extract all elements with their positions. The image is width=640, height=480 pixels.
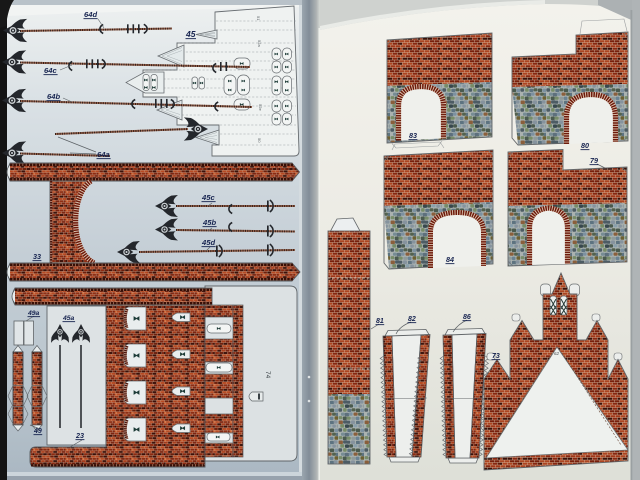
svg-text:23: 23 <box>75 431 84 440</box>
svg-text:84: 84 <box>446 255 454 264</box>
svg-text:62: 62 <box>554 351 560 356</box>
svg-text:51: 51 <box>256 16 261 21</box>
svg-text:45d: 45d <box>201 238 215 247</box>
svg-text:86: 86 <box>463 314 471 321</box>
svg-text:52e: 52e <box>258 104 263 111</box>
svg-text:74: 74 <box>264 371 271 379</box>
svg-text:33: 33 <box>33 252 41 261</box>
svg-text:73: 73 <box>492 353 500 360</box>
svg-text:81: 81 <box>376 318 384 325</box>
svg-text:50: 50 <box>257 138 262 143</box>
svg-text:83: 83 <box>409 131 417 140</box>
svg-text:45b: 45b <box>202 218 216 227</box>
svg-text:45c: 45c <box>201 193 215 202</box>
svg-text:45: 45 <box>185 29 196 39</box>
svg-text:82: 82 <box>408 316 416 323</box>
svg-text:80: 80 <box>581 141 589 150</box>
svg-text:64c: 64c <box>44 66 57 75</box>
svg-text:79: 79 <box>590 156 598 165</box>
svg-text:49: 49 <box>33 428 42 435</box>
svg-text:52a: 52a <box>257 40 262 47</box>
svg-text:49a: 49a <box>27 310 40 317</box>
svg-text:64b: 64b <box>47 92 60 101</box>
svg-text:45a: 45a <box>62 315 75 322</box>
svg-text:64d: 64d <box>84 10 97 19</box>
svg-text:64a: 64a <box>97 150 110 159</box>
